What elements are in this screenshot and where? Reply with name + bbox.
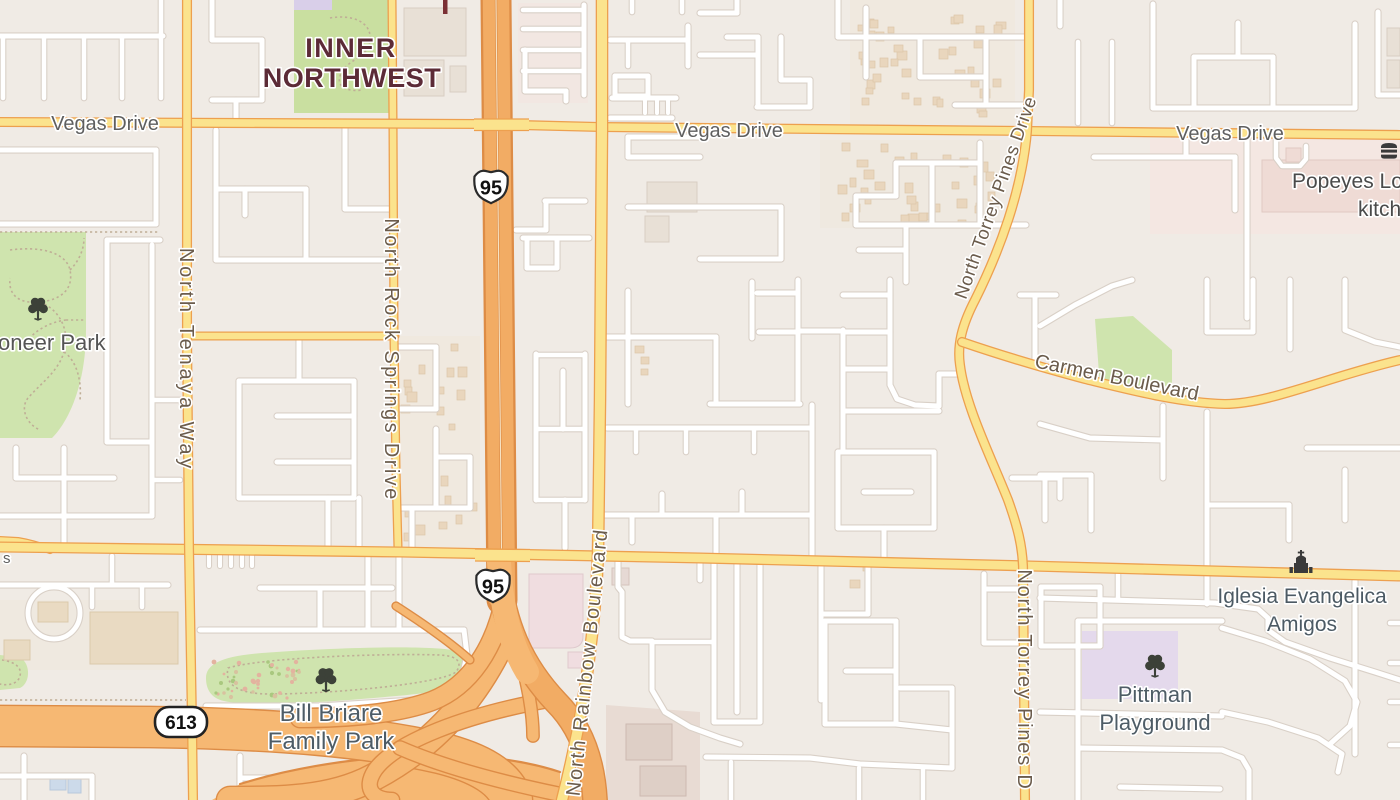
svg-text:INNER: INNER [305, 33, 397, 63]
svg-text:kitchen: kitchen [1358, 198, 1400, 221]
svg-text:Pioneer Park: Pioneer Park [0, 330, 107, 355]
svg-text:Family Park: Family Park [268, 728, 396, 755]
svg-text:Vegas Drive: Vegas Drive [675, 120, 783, 142]
svg-text:Amigos: Amigos [1267, 613, 1337, 636]
svg-text:95: 95 [482, 577, 504, 599]
svg-text:North Torrey Pines D: North Torrey Pines D [1013, 569, 1035, 790]
svg-text:Pittman: Pittman [1118, 682, 1193, 707]
svg-text:Popeyes Louisiana: Popeyes Louisiana [1292, 170, 1400, 193]
svg-text:Playground: Playground [1099, 710, 1210, 735]
svg-text:613: 613 [165, 713, 197, 734]
svg-text:Iglesia Evangelica: Iglesia Evangelica [1217, 585, 1387, 608]
svg-text:NORTHWEST: NORTHWEST [263, 63, 441, 93]
svg-text:Vegas Drive: Vegas Drive [1176, 123, 1284, 145]
svg-text:North Tenaya Way: North Tenaya Way [175, 248, 197, 472]
svg-text:Vegas Drive: Vegas Drive [51, 113, 159, 135]
svg-text:95: 95 [480, 178, 502, 200]
svg-text:Bill Briare: Bill Briare [280, 700, 383, 727]
svg-text:North Rock Springs Drive: North Rock Springs Drive [380, 218, 402, 501]
svg-text:s: s [3, 550, 11, 567]
